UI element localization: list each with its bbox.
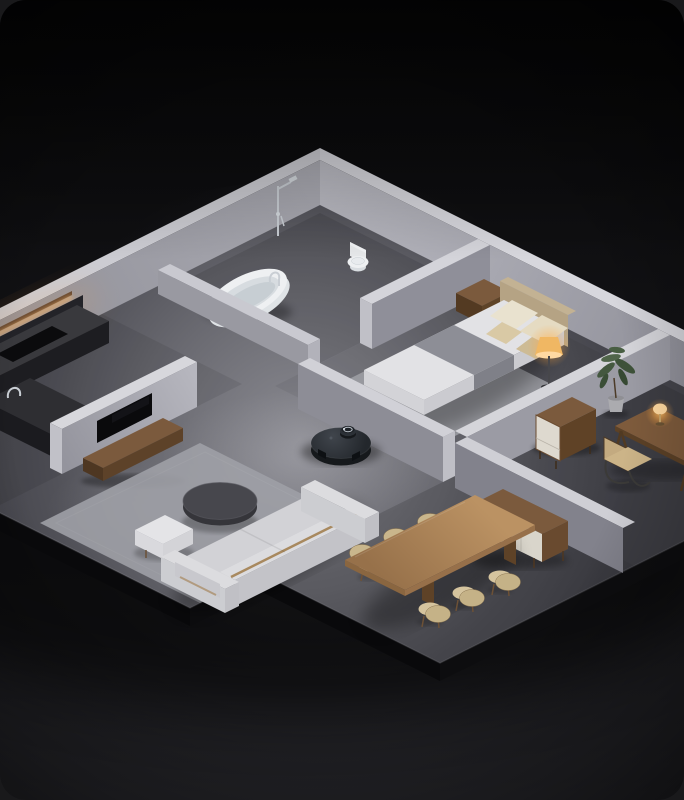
- apartment-scene: [0, 0, 684, 800]
- hero-image-card: [0, 0, 684, 800]
- top-shade: [0, 0, 684, 260]
